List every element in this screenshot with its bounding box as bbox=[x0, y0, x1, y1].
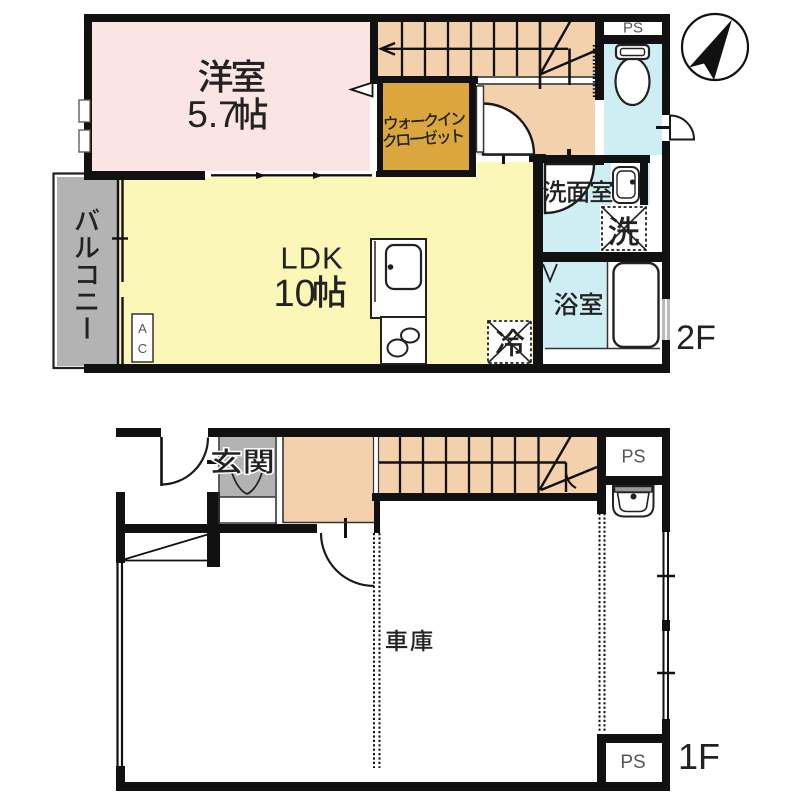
svg-text:LDK: LDK bbox=[280, 241, 343, 276]
svg-text:5.7: 5.7 bbox=[187, 94, 238, 135]
svg-text:C: C bbox=[138, 341, 147, 356]
svg-text:1F: 1F bbox=[678, 736, 720, 777]
svg-text:10: 10 bbox=[274, 273, 316, 315]
svg-text:PS: PS bbox=[623, 20, 643, 37]
svg-text:A: A bbox=[138, 321, 147, 336]
svg-text:2F: 2F bbox=[676, 319, 716, 357]
svg-text:PS: PS bbox=[621, 447, 645, 467]
svg-text:PS: PS bbox=[620, 752, 645, 773]
